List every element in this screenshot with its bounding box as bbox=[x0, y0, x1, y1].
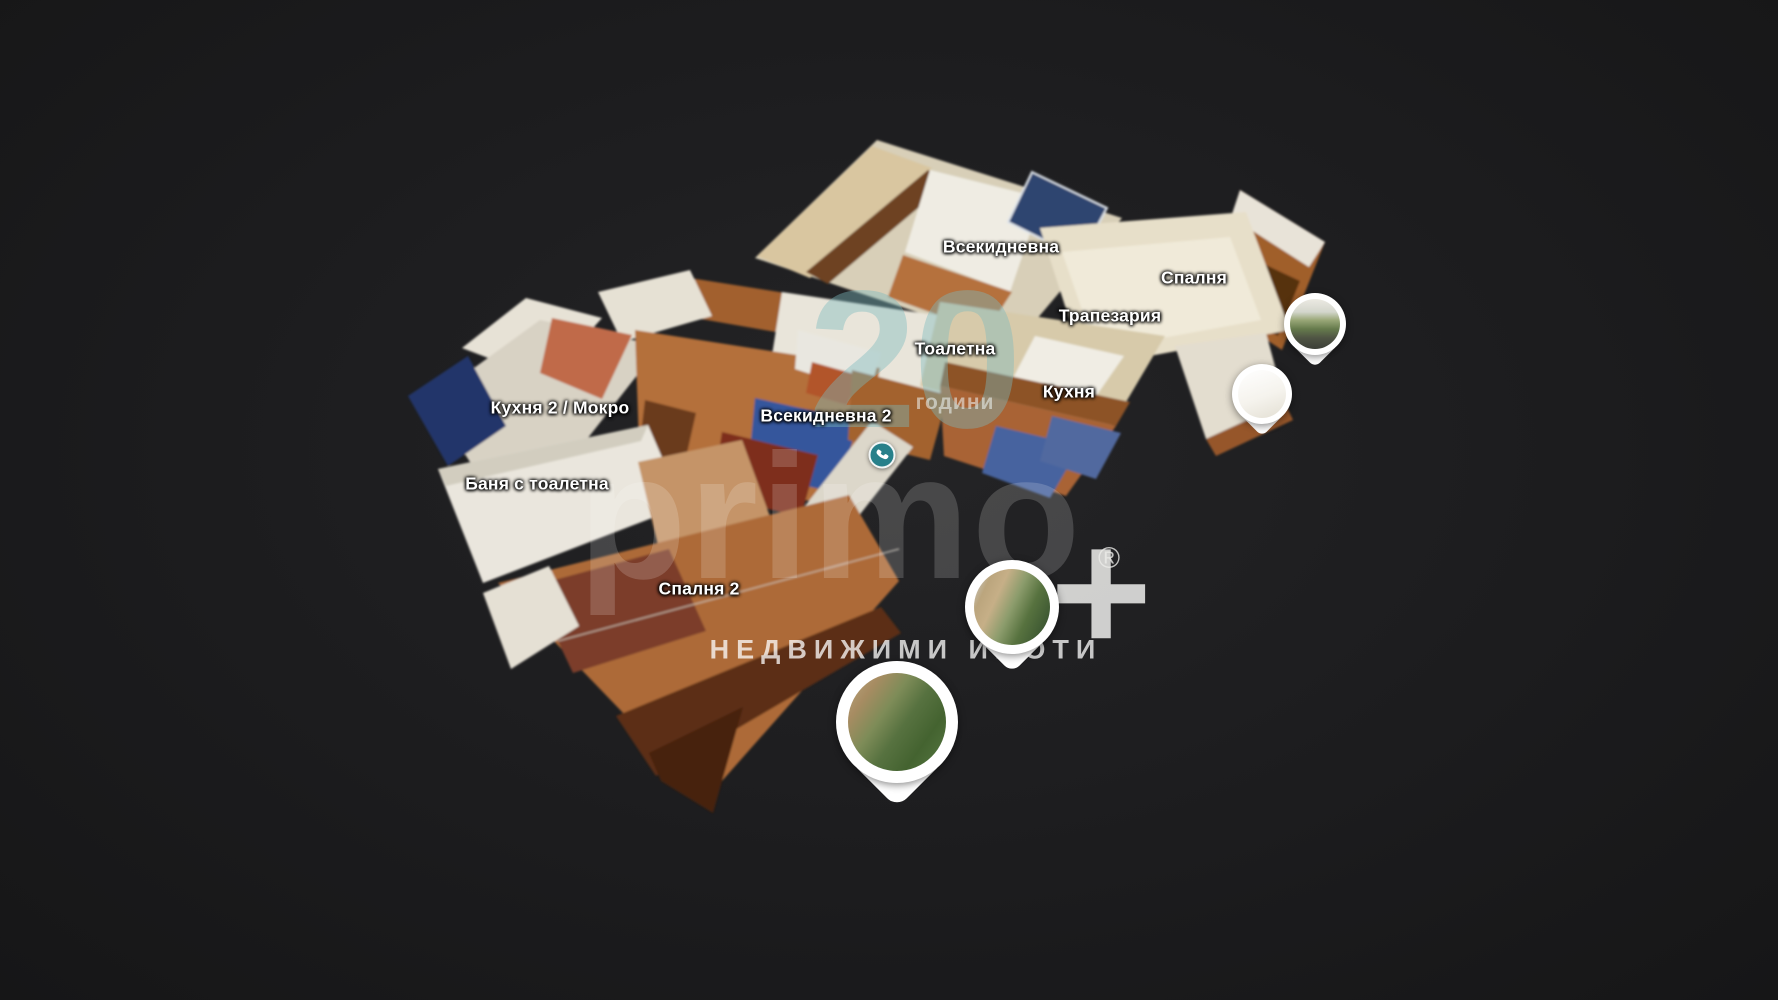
room-label: Кухня bbox=[1043, 382, 1095, 403]
pin-photo-garden bbox=[848, 673, 946, 771]
pin-photo-terrace bbox=[1290, 299, 1340, 349]
phone-icon bbox=[875, 448, 890, 463]
3d-tour-viewport[interactable]: 20 години primo + ® НЕДВИЖИМИ ИМОТИ Всек… bbox=[0, 0, 1778, 1000]
photo-pin-overexposed[interactable] bbox=[1232, 364, 1292, 424]
pin-photo-street bbox=[974, 569, 1050, 645]
room-label: Спалня bbox=[1161, 268, 1227, 289]
photo-pin-street[interactable] bbox=[965, 560, 1059, 654]
room-label: Всекидневна bbox=[943, 237, 1059, 258]
dollhouse-model[interactable] bbox=[0, 0, 1778, 1000]
room-label: Всекидневна 2 bbox=[760, 406, 891, 427]
room-label: Трапезария bbox=[1059, 306, 1162, 327]
room-label: Тоалетна bbox=[915, 339, 996, 360]
phone-marker-button[interactable] bbox=[869, 442, 896, 469]
room-label: Кухня 2 / Мокро bbox=[491, 398, 630, 419]
room-label: Спалня 2 bbox=[658, 579, 739, 600]
photo-pin-terrace[interactable] bbox=[1284, 293, 1346, 355]
room-label: Баня с тоалетна bbox=[465, 474, 609, 495]
pin-photo-overexposed bbox=[1238, 370, 1286, 418]
photo-pin-garden[interactable] bbox=[836, 661, 958, 783]
